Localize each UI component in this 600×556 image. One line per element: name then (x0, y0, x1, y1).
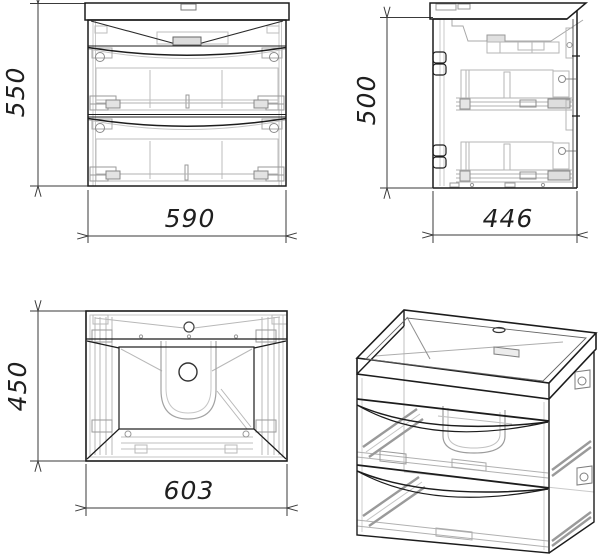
iso-countertop-rim (357, 333, 596, 399)
front-height-label: 550 (1, 67, 30, 118)
sink-basin-outline (161, 341, 216, 419)
top-depth-label: 450 (3, 361, 32, 412)
side-depth-label: 446 (483, 204, 534, 233)
front-width-label: 590 (165, 204, 216, 233)
top-outline (86, 311, 287, 461)
front-view: 550 590 (1, 3, 289, 243)
side-outline (430, 3, 586, 188)
front-height-dimension (30, 4, 91, 187)
front-countertop (85, 3, 289, 20)
drain-hole (179, 363, 197, 381)
iso-internal-details (357, 317, 594, 550)
side-internal-details (436, 4, 583, 187)
iso-outline (357, 310, 596, 553)
isometric-view (357, 310, 596, 553)
side-height-dimension (380, 18, 433, 189)
faucet-hole (184, 322, 194, 332)
top-width-label: 603 (164, 476, 215, 505)
top-sink-rim (86, 311, 287, 461)
iso-drawer-2-curve (357, 471, 548, 492)
side-height-label: 500 (352, 75, 381, 126)
top-view: 450 603 (3, 311, 287, 516)
iso-cabinet-side (549, 352, 594, 553)
iso-cabinet-front (357, 374, 549, 553)
iso-countertop-top (357, 310, 596, 383)
side-view: 500 446 (352, 3, 586, 243)
technical-drawing-sheet: 550 590 (0, 0, 600, 556)
iso-drawer-1-curve (357, 405, 548, 426)
side-countertop (430, 3, 586, 19)
top-depth-dimension (30, 311, 86, 461)
vanity-cabinet-drawing: 550 590 (0, 0, 600, 556)
